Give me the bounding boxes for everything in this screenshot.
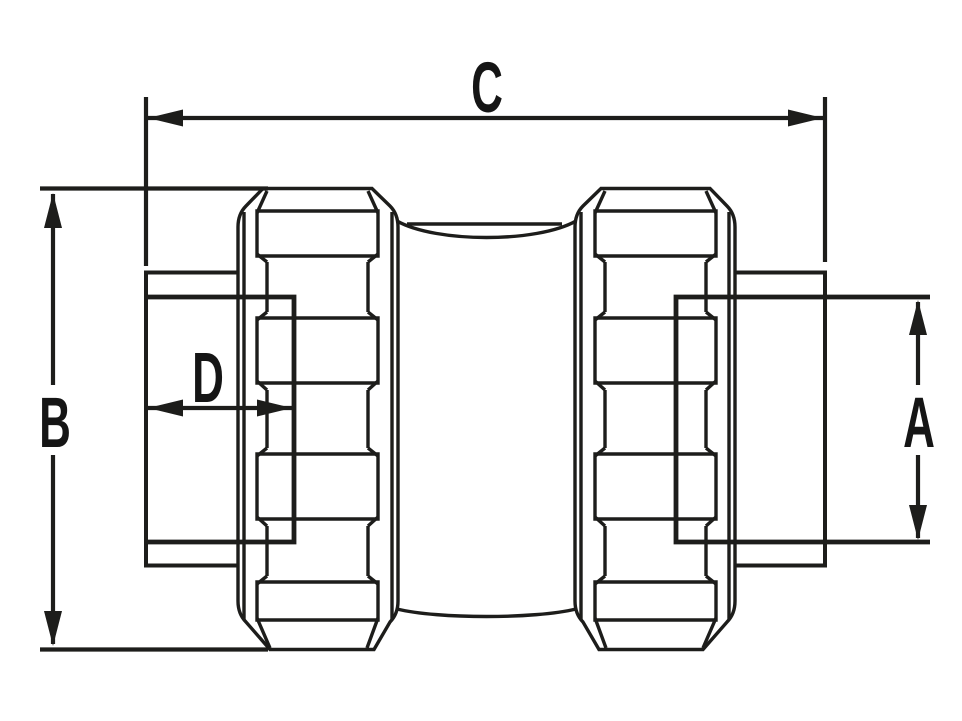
dimension-label-d: D	[192, 338, 224, 417]
body-tube	[397, 221, 576, 617]
dim-c-arrowhead-right	[788, 110, 823, 127]
right-pipe-outer-outline	[734, 273, 825, 566]
dim-a-arrowhead-top	[909, 300, 927, 335]
coupling-technical-drawing: C B D A	[0, 0, 962, 721]
body-bottom-curve	[397, 609, 576, 617]
nut-rib-1	[257, 211, 378, 256]
nut-rib-3	[257, 454, 378, 519]
dimension-label-a: A	[903, 383, 935, 462]
dim-b-arrowhead-top	[44, 193, 62, 228]
right-nut	[575, 189, 735, 650]
dim-c-arrowhead-left	[148, 110, 183, 127]
dimension-B	[40, 189, 268, 650]
nut-rib-2	[257, 318, 378, 383]
left-nut	[238, 189, 398, 650]
dimension-label-c: C	[471, 48, 503, 127]
dim-a-arrowhead-bottom	[909, 505, 927, 540]
dim-d-arrowhead-left	[148, 400, 183, 417]
dimension-label-b: B	[39, 383, 71, 462]
drawing-canvas: C B D A	[0, 0, 962, 721]
dim-b-arrowhead-bottom	[44, 611, 62, 646]
left-pipe-outer-outline	[146, 273, 237, 566]
nut-rib-4	[257, 582, 378, 620]
